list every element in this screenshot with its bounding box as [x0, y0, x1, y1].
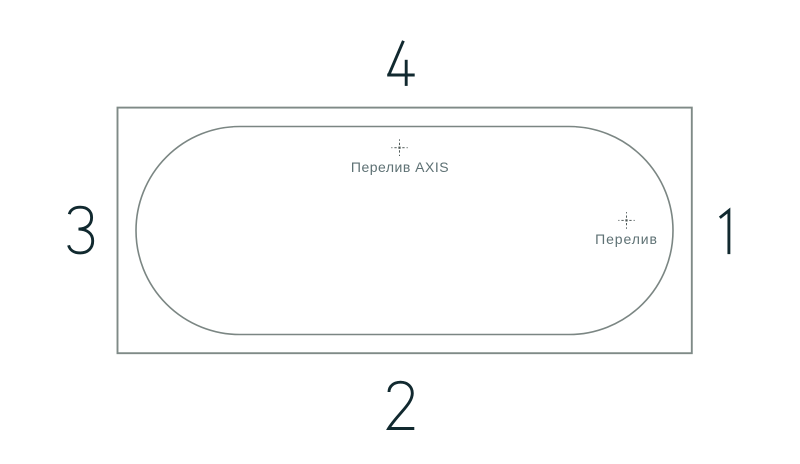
svg-text:Перелив AXIS: Перелив AXIS — [351, 159, 449, 175]
svg-text:Перелив: Перелив — [595, 231, 658, 247]
